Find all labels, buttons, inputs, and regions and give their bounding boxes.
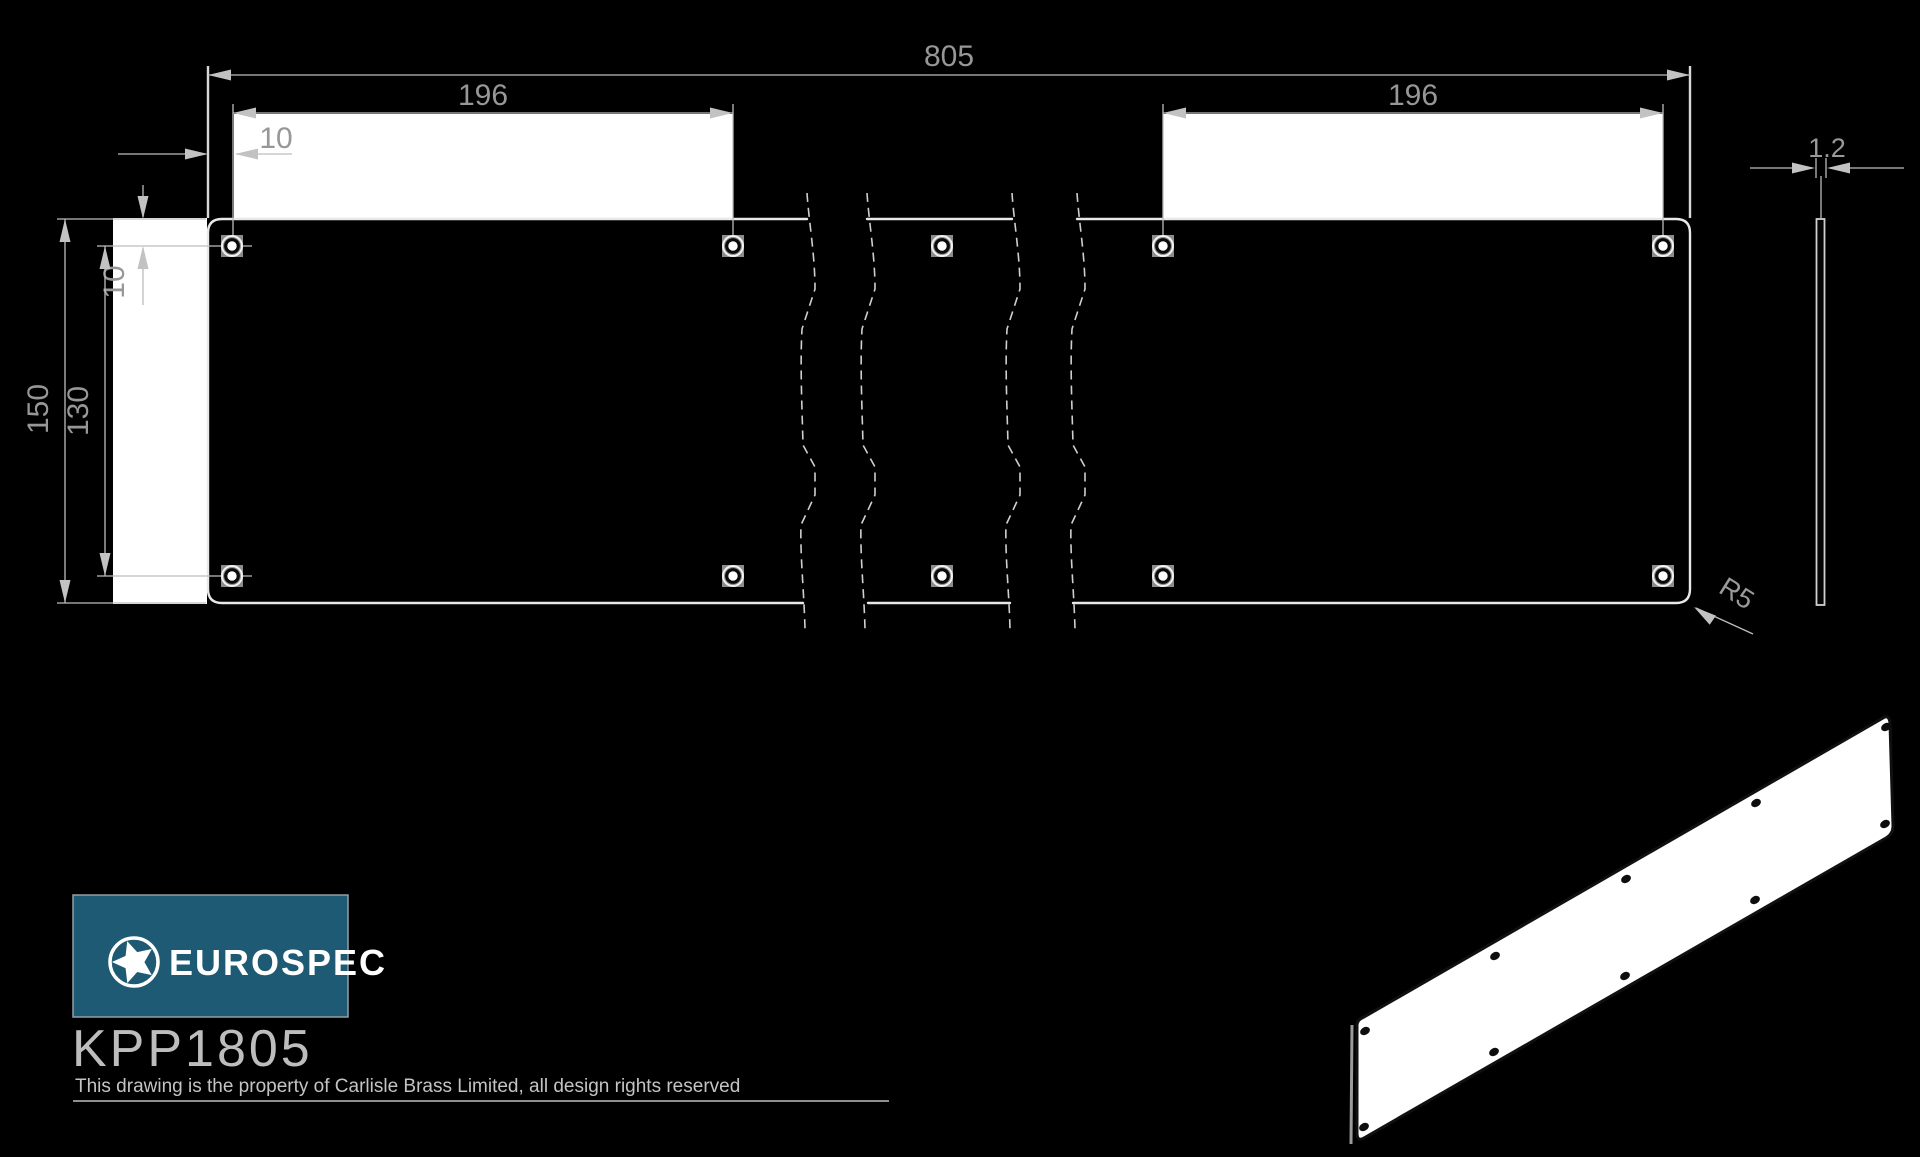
- side-view: 1.2: [1750, 133, 1904, 605]
- dim-label-805: 805: [924, 40, 974, 73]
- isometric-plate-face: [1357, 717, 1893, 1139]
- dim-label-r5: R5: [1714, 572, 1759, 616]
- white-fill-regions: [113, 114, 1663, 604]
- plate-outline-left: [208, 219, 807, 603]
- product-code: KPP1805: [72, 1020, 313, 1078]
- dim-label-10-horizontal: 10: [259, 122, 292, 155]
- dim-hole-offset-x: 10: [118, 122, 293, 160]
- screw-hole: [221, 235, 243, 257]
- dim-label-196-left: 196: [458, 79, 508, 112]
- screw-hole: [722, 235, 744, 257]
- dim-label-130: 130: [62, 386, 95, 436]
- plate-thickness-edge: [1351, 1025, 1352, 1144]
- screw-hole: [1152, 235, 1174, 257]
- cad-drawing-canvas: 805 196 196 10 10: [0, 0, 1920, 1157]
- brand-name: EUROSPEC: [169, 942, 387, 983]
- dim-label-10-vertical: 10: [98, 265, 131, 298]
- dim-label-150: 150: [22, 384, 55, 434]
- break-line: [1006, 193, 1020, 629]
- dim-panel-width-right: 196: [1163, 79, 1663, 119]
- copyright-note: This drawing is the property of Carlisle…: [75, 1076, 740, 1097]
- screw-hole: [1652, 565, 1674, 587]
- plate-outline-right: [1073, 219, 1690, 603]
- screw-hole: [221, 565, 243, 587]
- screw-hole: [722, 565, 744, 587]
- screw-hole: [931, 235, 953, 257]
- dim-corner-radius: R5: [1691, 572, 1760, 634]
- screw-hole: [1652, 235, 1674, 257]
- white-band-left: [234, 114, 733, 219]
- title-block: EUROSPEC KPP1805 This drawing is the pro…: [72, 895, 889, 1101]
- dim-overall-width: 805: [208, 40, 1690, 81]
- screw-hole: [931, 565, 953, 587]
- break-line: [861, 193, 875, 629]
- dim-label-196-right: 196: [1388, 79, 1438, 112]
- dim-thickness: 1.2: [1750, 133, 1904, 178]
- dim-panel-width-left: 196: [233, 79, 733, 119]
- plate-edge-profile: [1817, 219, 1825, 605]
- break-line: [1071, 193, 1085, 629]
- dim-label-thickness: 1.2: [1808, 133, 1846, 163]
- screw-hole: [1152, 565, 1174, 587]
- kick-plate-technical-drawing: 805 196 196 10 10: [0, 0, 1920, 1157]
- break-line: [801, 193, 815, 629]
- white-band-right: [1163, 114, 1663, 219]
- isometric-view: [1351, 717, 1893, 1144]
